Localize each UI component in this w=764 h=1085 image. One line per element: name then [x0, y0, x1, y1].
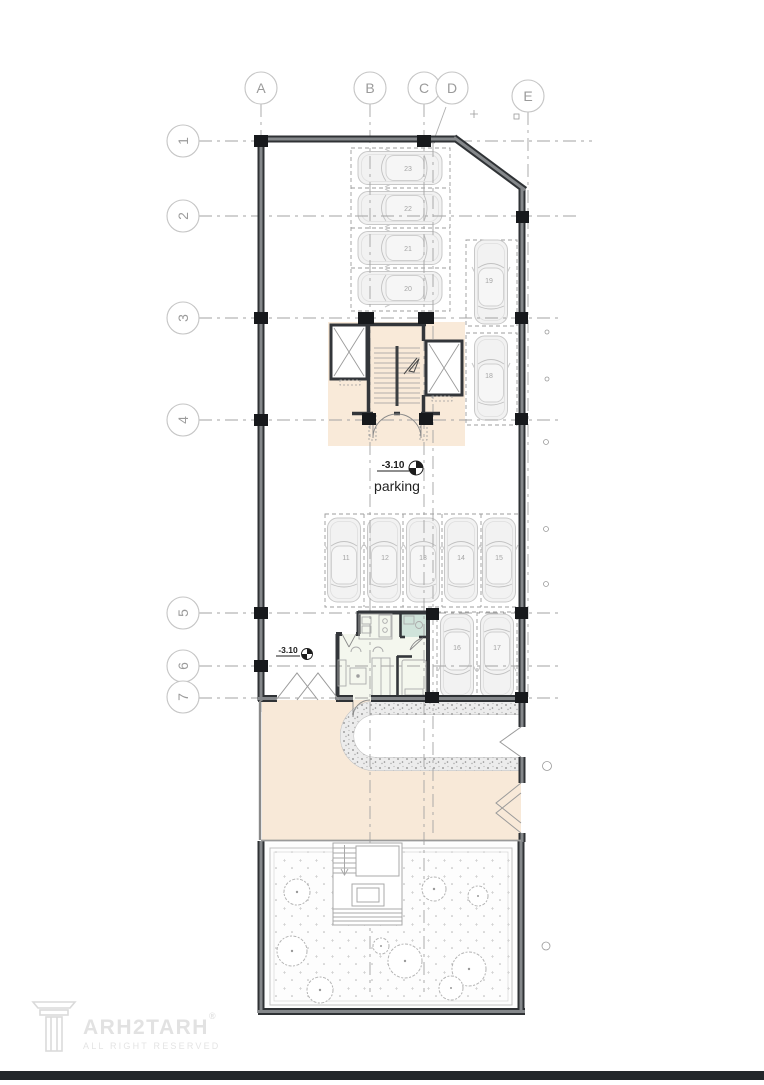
stall-number: 21	[404, 246, 412, 253]
brand-letters: ARH2TARH	[83, 1016, 209, 1039]
grid-column-label-b: B	[365, 80, 374, 96]
garden-structure	[333, 843, 402, 925]
level-marker-icon	[302, 649, 313, 660]
car-icon	[358, 149, 442, 187]
grid-row-label-1: 1	[175, 137, 191, 145]
grid-row-label-2: 2	[175, 212, 191, 220]
grid-row-label-3: 3	[175, 314, 191, 322]
car-icon	[358, 189, 442, 227]
stall-number: 22	[404, 206, 412, 213]
logo-text: ARH2TARH® ALL RIGHT RESERVED	[83, 1000, 220, 1051]
brand-tagline: ALL RIGHT RESERVED	[83, 1041, 220, 1051]
stall-number: 23	[404, 166, 412, 173]
car-icon	[358, 269, 442, 307]
footer-bar	[0, 1071, 764, 1080]
stall-number: 13	[419, 555, 427, 562]
floor-plan-sheet: 23 22 21 20 19 18 11 12 13 14 15 16 17 A…	[0, 0, 764, 1080]
grid-row-label-5: 5	[175, 609, 191, 617]
stall-number: 12	[381, 555, 389, 562]
parking-label: parking	[374, 478, 420, 494]
parking-level-text: -3.10	[382, 460, 405, 471]
car-icon	[478, 614, 516, 698]
entrance-level-text: -3.10	[278, 645, 298, 655]
stall-number: 18	[485, 373, 493, 380]
grid-column-label-d: D	[447, 80, 457, 96]
grid-column-label-a: A	[256, 80, 266, 96]
stall-number: 17	[493, 645, 501, 652]
registered-mark: ®	[209, 1011, 216, 1021]
stall-number: 14	[457, 555, 465, 562]
car-icon	[358, 229, 442, 267]
grid-row-label-4: 4	[175, 416, 191, 424]
level-marker-icon	[409, 461, 423, 475]
floor-plan-drawing: 23 22 21 20 19 18 11 12 13 14 15 16 17 A…	[0, 0, 764, 1080]
grid-row-label-6: 6	[175, 662, 191, 670]
grid-column-label-c: C	[419, 80, 429, 96]
stall-number: 20	[404, 286, 412, 293]
stall-number: 15	[495, 555, 503, 562]
car-icon	[438, 614, 476, 698]
brand-name: ARH2TARH®	[83, 1017, 220, 1038]
stall-number: 11	[342, 555, 349, 562]
stall-number: 16	[453, 645, 461, 652]
grid-column-label-e: E	[523, 88, 532, 104]
brand-logo: ARH2TARH® ALL RIGHT RESERVED	[30, 1000, 220, 1052]
grid-row-label-7: 7	[175, 693, 191, 701]
stair-handrail	[396, 346, 399, 406]
column-icon	[30, 1000, 78, 1052]
stall-number: 19	[485, 278, 493, 285]
